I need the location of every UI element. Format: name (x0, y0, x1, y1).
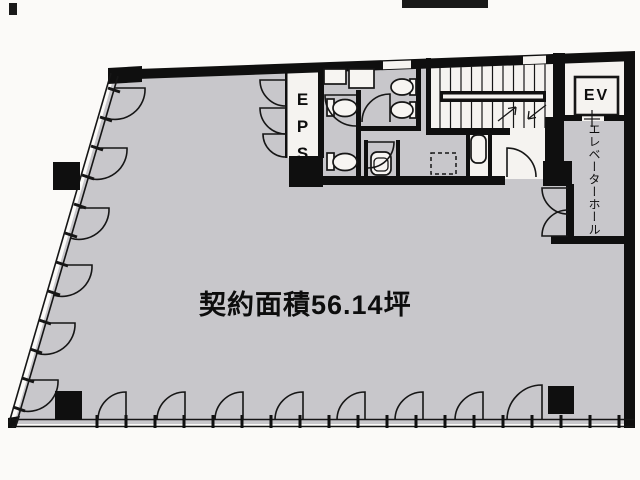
closet-wall (466, 128, 470, 178)
mirror-cabinet (349, 69, 374, 88)
restroom-south-wall (322, 176, 505, 185)
closet-wall (488, 128, 492, 178)
scan-artifacts (9, 0, 488, 15)
top-wall-window (523, 56, 546, 65)
elevator-front-wall (564, 115, 582, 121)
stair-east-wall-lower (545, 117, 564, 163)
toilet-bowl (391, 79, 413, 95)
column (548, 386, 574, 414)
eps-shaft-label: EPS (294, 90, 311, 171)
elevator-front-wall (604, 115, 625, 121)
toilet-bowl (391, 102, 413, 118)
stair-west-wall (426, 58, 431, 133)
column (543, 161, 572, 186)
floor-plan-drawing (0, 0, 640, 480)
contract-area-label: 契約面積56.14坪 (199, 283, 412, 322)
toilet-bowl (333, 100, 357, 117)
top-wall-window (383, 61, 411, 70)
restroom-wall (356, 90, 361, 180)
eps-left-wall (285, 70, 288, 158)
floor-plan: 契約面積56.14坪 EPS EV エレベーターホール (0, 0, 640, 480)
stall-wall (396, 140, 400, 178)
hall-west-wall (566, 184, 574, 240)
top-left-wall-cap (108, 66, 142, 84)
stair-handrail-inner (443, 95, 543, 99)
column (53, 162, 80, 190)
elevator-label: EV (575, 77, 618, 115)
stall-wall (364, 140, 368, 178)
scan-edge-mark (402, 0, 488, 8)
elevator-hall-label: エレベーターホール (588, 123, 600, 239)
restroom-wall (356, 126, 421, 131)
restroom-wall (416, 62, 421, 131)
eps-right-wall (318, 64, 324, 158)
stair-east-wall (553, 53, 565, 117)
scan-edge-mark (9, 3, 17, 15)
slop-sink (471, 135, 486, 163)
column (55, 391, 82, 420)
toilet-bowl (333, 154, 357, 171)
sink-counter (324, 69, 346, 84)
